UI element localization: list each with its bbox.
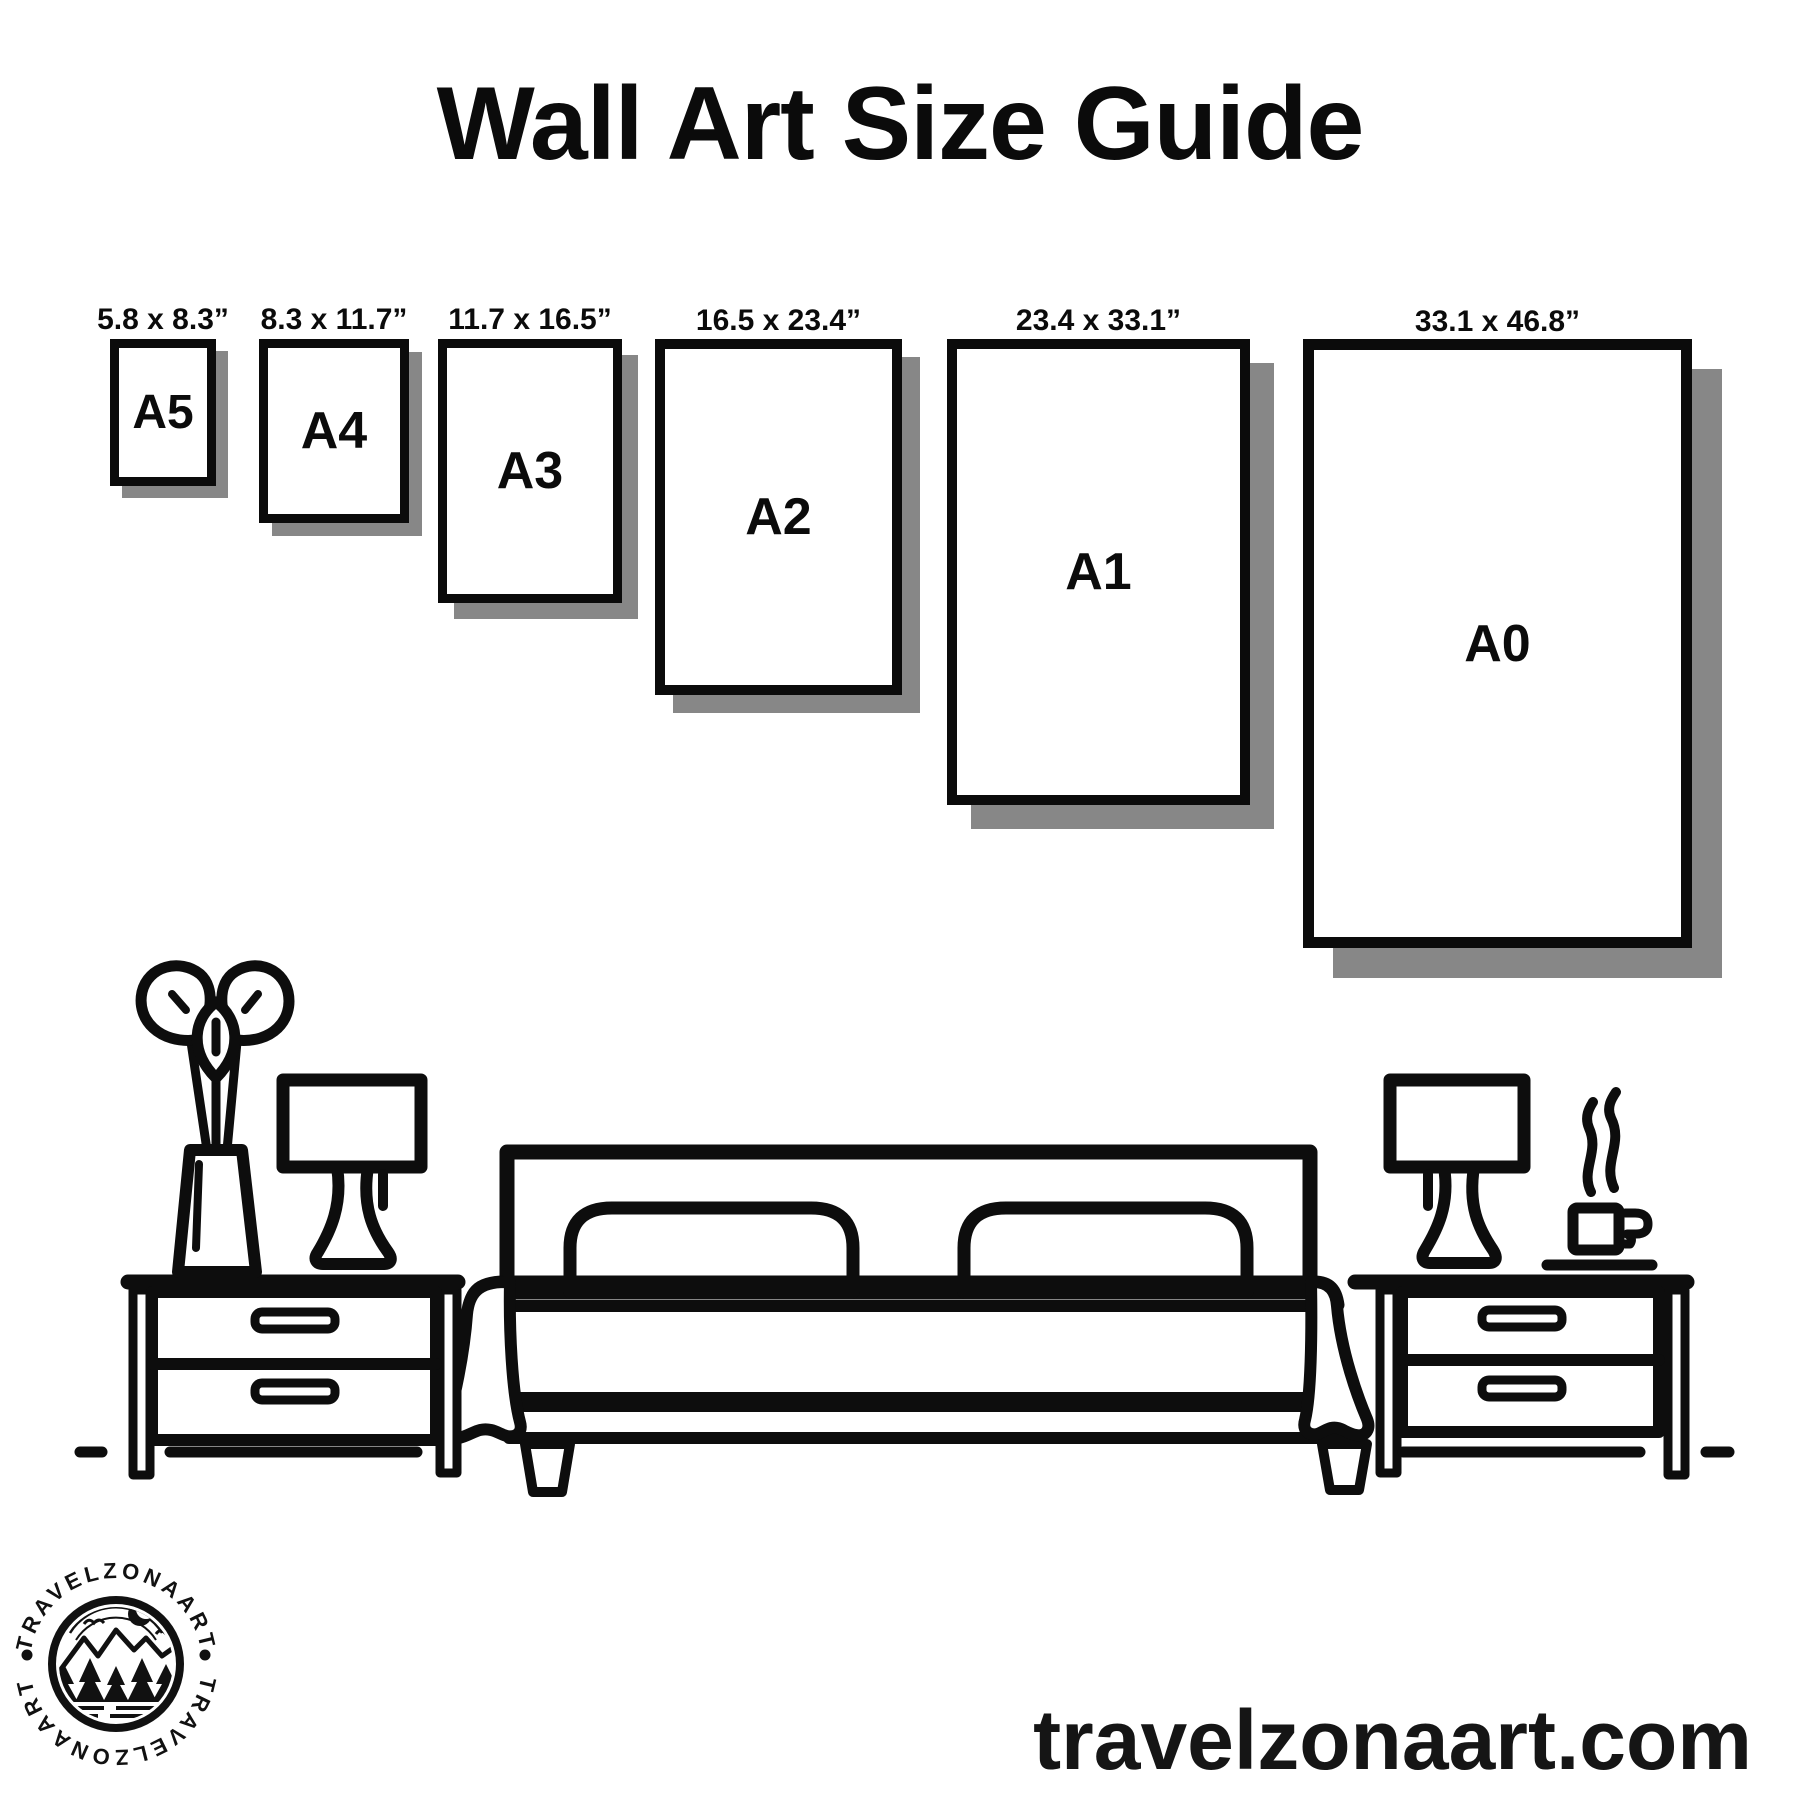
size-dimensions-label-a3: 11.7 x 16.5” — [448, 303, 611, 337]
blanket-drape-icon — [1304, 1282, 1368, 1435]
bed-leg — [1322, 1444, 1367, 1490]
size-frame-a4: 8.3 x 11.7” A4 — [259, 339, 409, 523]
cup-body — [1573, 1208, 1619, 1250]
bed-leg — [525, 1444, 570, 1492]
size-dimensions-label-a4: 8.3 x 11.7” — [261, 303, 408, 337]
bedroom-illustration — [0, 950, 1800, 1530]
page-title: Wall Art Size Guide — [0, 72, 1800, 176]
cup-handle — [1625, 1213, 1648, 1244]
website-url: travelzonaart.com — [1033, 1692, 1752, 1789]
size-frame-a0: 33.1 x 46.8” A0 — [1303, 339, 1692, 948]
size-dimensions-label-a5: 5.8 x 8.3” — [97, 303, 229, 337]
wall-art-size-guide-poster: Wall Art Size Guide 5.8 x 8.3” A5 8.3 x … — [0, 0, 1800, 1800]
bed-base — [509, 1406, 1349, 1438]
vase-highlight — [196, 1164, 199, 1248]
size-name-label-a4: A4 — [301, 401, 367, 461]
logo-dot — [200, 1650, 211, 1661]
steam-icon — [1609, 1092, 1616, 1188]
table-lamp-left-icon — [283, 1080, 421, 1264]
size-name-label-a5: A5 — [132, 385, 193, 440]
lamp-stem — [1423, 1167, 1496, 1263]
brand-logo-badge: TRAVELZONAART TRAVELZONAART — [0, 1540, 250, 1790]
lamp-shade — [283, 1080, 421, 1167]
double-bed-icon — [446, 1152, 1368, 1492]
table-lamp-right-icon — [1390, 1080, 1524, 1263]
size-frame-a1: 23.4 x 33.1” A1 — [947, 339, 1250, 805]
steam-icon — [1587, 1102, 1593, 1192]
coffee-cup-icon — [1547, 1092, 1652, 1265]
mattress — [493, 1306, 1324, 1398]
nightstand-right-icon — [1355, 1282, 1687, 1475]
size-dimensions-label-a1: 23.4 x 33.1” — [1016, 304, 1181, 338]
size-name-label-a3: A3 — [497, 441, 563, 501]
logo-dot — [22, 1650, 33, 1661]
nightstand-left-icon — [128, 1282, 458, 1475]
nightstand-leg — [440, 1290, 457, 1473]
lamp-shade — [1390, 1080, 1524, 1167]
size-name-label-a2: A2 — [745, 487, 811, 547]
size-frame-a2: 16.5 x 23.4” A2 — [655, 339, 902, 695]
plant-vase-icon — [141, 966, 289, 1272]
nightstand-leg — [1668, 1290, 1685, 1475]
size-name-label-a1: A1 — [1065, 542, 1131, 602]
size-dimensions-label-a0: 33.1 x 46.8” — [1415, 305, 1580, 339]
size-dimensions-label-a2: 16.5 x 23.4” — [696, 304, 861, 338]
vase — [178, 1150, 256, 1272]
size-frame-a5: 5.8 x 8.3” A5 — [110, 339, 216, 486]
size-name-label-a0: A0 — [1464, 614, 1530, 674]
size-frame-a3: 11.7 x 16.5” A3 — [438, 339, 622, 603]
nightstand-leg — [1380, 1290, 1397, 1473]
